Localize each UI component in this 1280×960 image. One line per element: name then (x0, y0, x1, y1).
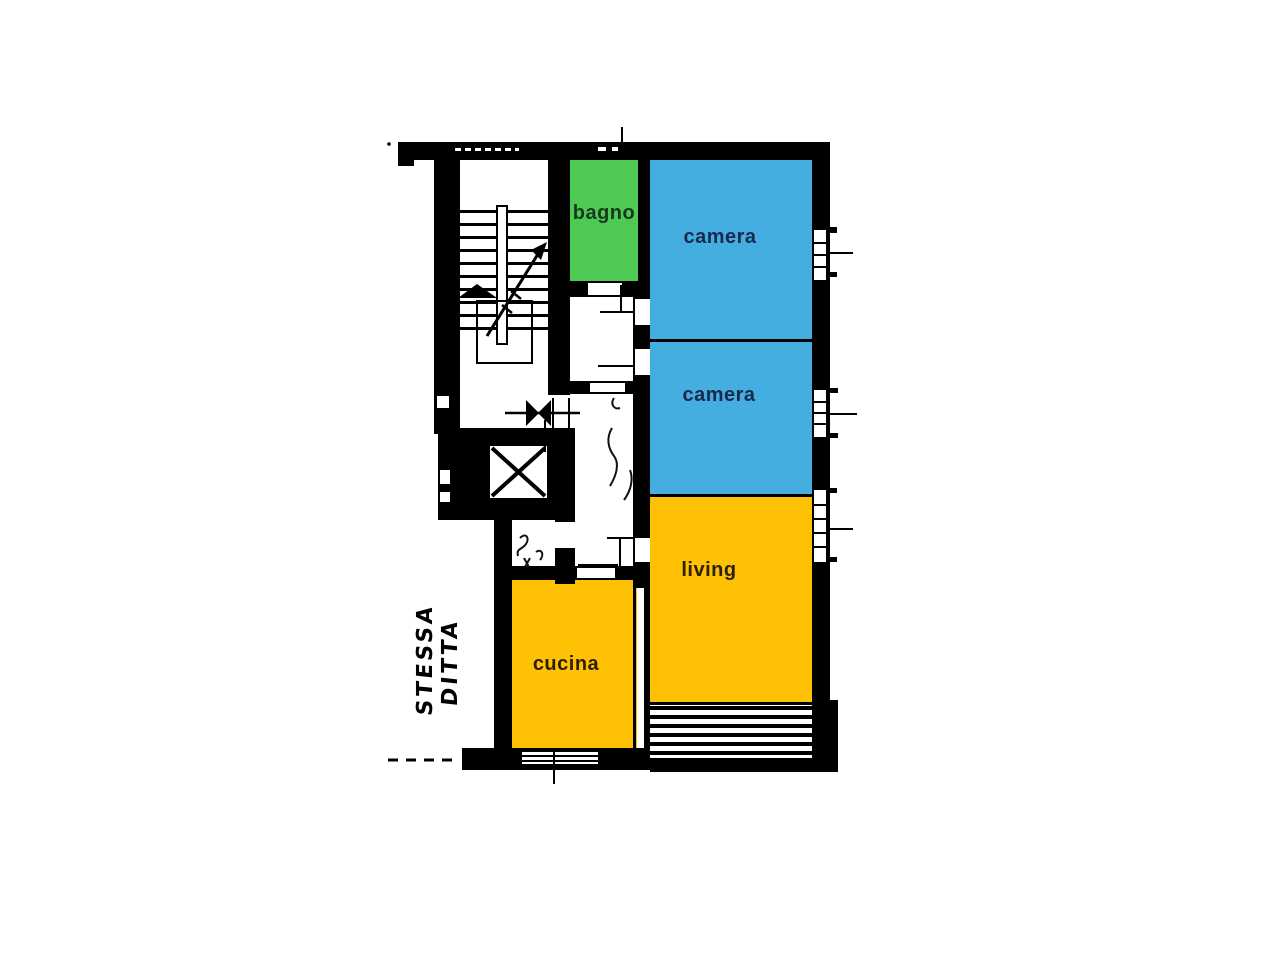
corner-dot (387, 142, 391, 146)
room-label-living: living (659, 559, 759, 582)
room-label-camera1: camera (670, 226, 770, 249)
plan-annotations (0, 0, 1280, 960)
entry-door-icon (505, 398, 580, 428)
floor-plan: bagno camera camera living cucina STESSA… (0, 0, 1280, 960)
stair-direction-arrow (487, 242, 547, 336)
handwritten-note: STESSA DITTA (413, 553, 443, 766)
door-leaf-lines (578, 285, 635, 575)
stair-up-wedge-icon (458, 284, 497, 298)
room-label-camera2: camera (669, 384, 769, 407)
room-label-cucina: cucina (516, 653, 616, 676)
room-label-bagno: bagno (554, 202, 654, 225)
elevator-x-icon (492, 420, 562, 496)
pencil-squiggles (518, 398, 632, 567)
window-axis-lines (830, 253, 857, 529)
